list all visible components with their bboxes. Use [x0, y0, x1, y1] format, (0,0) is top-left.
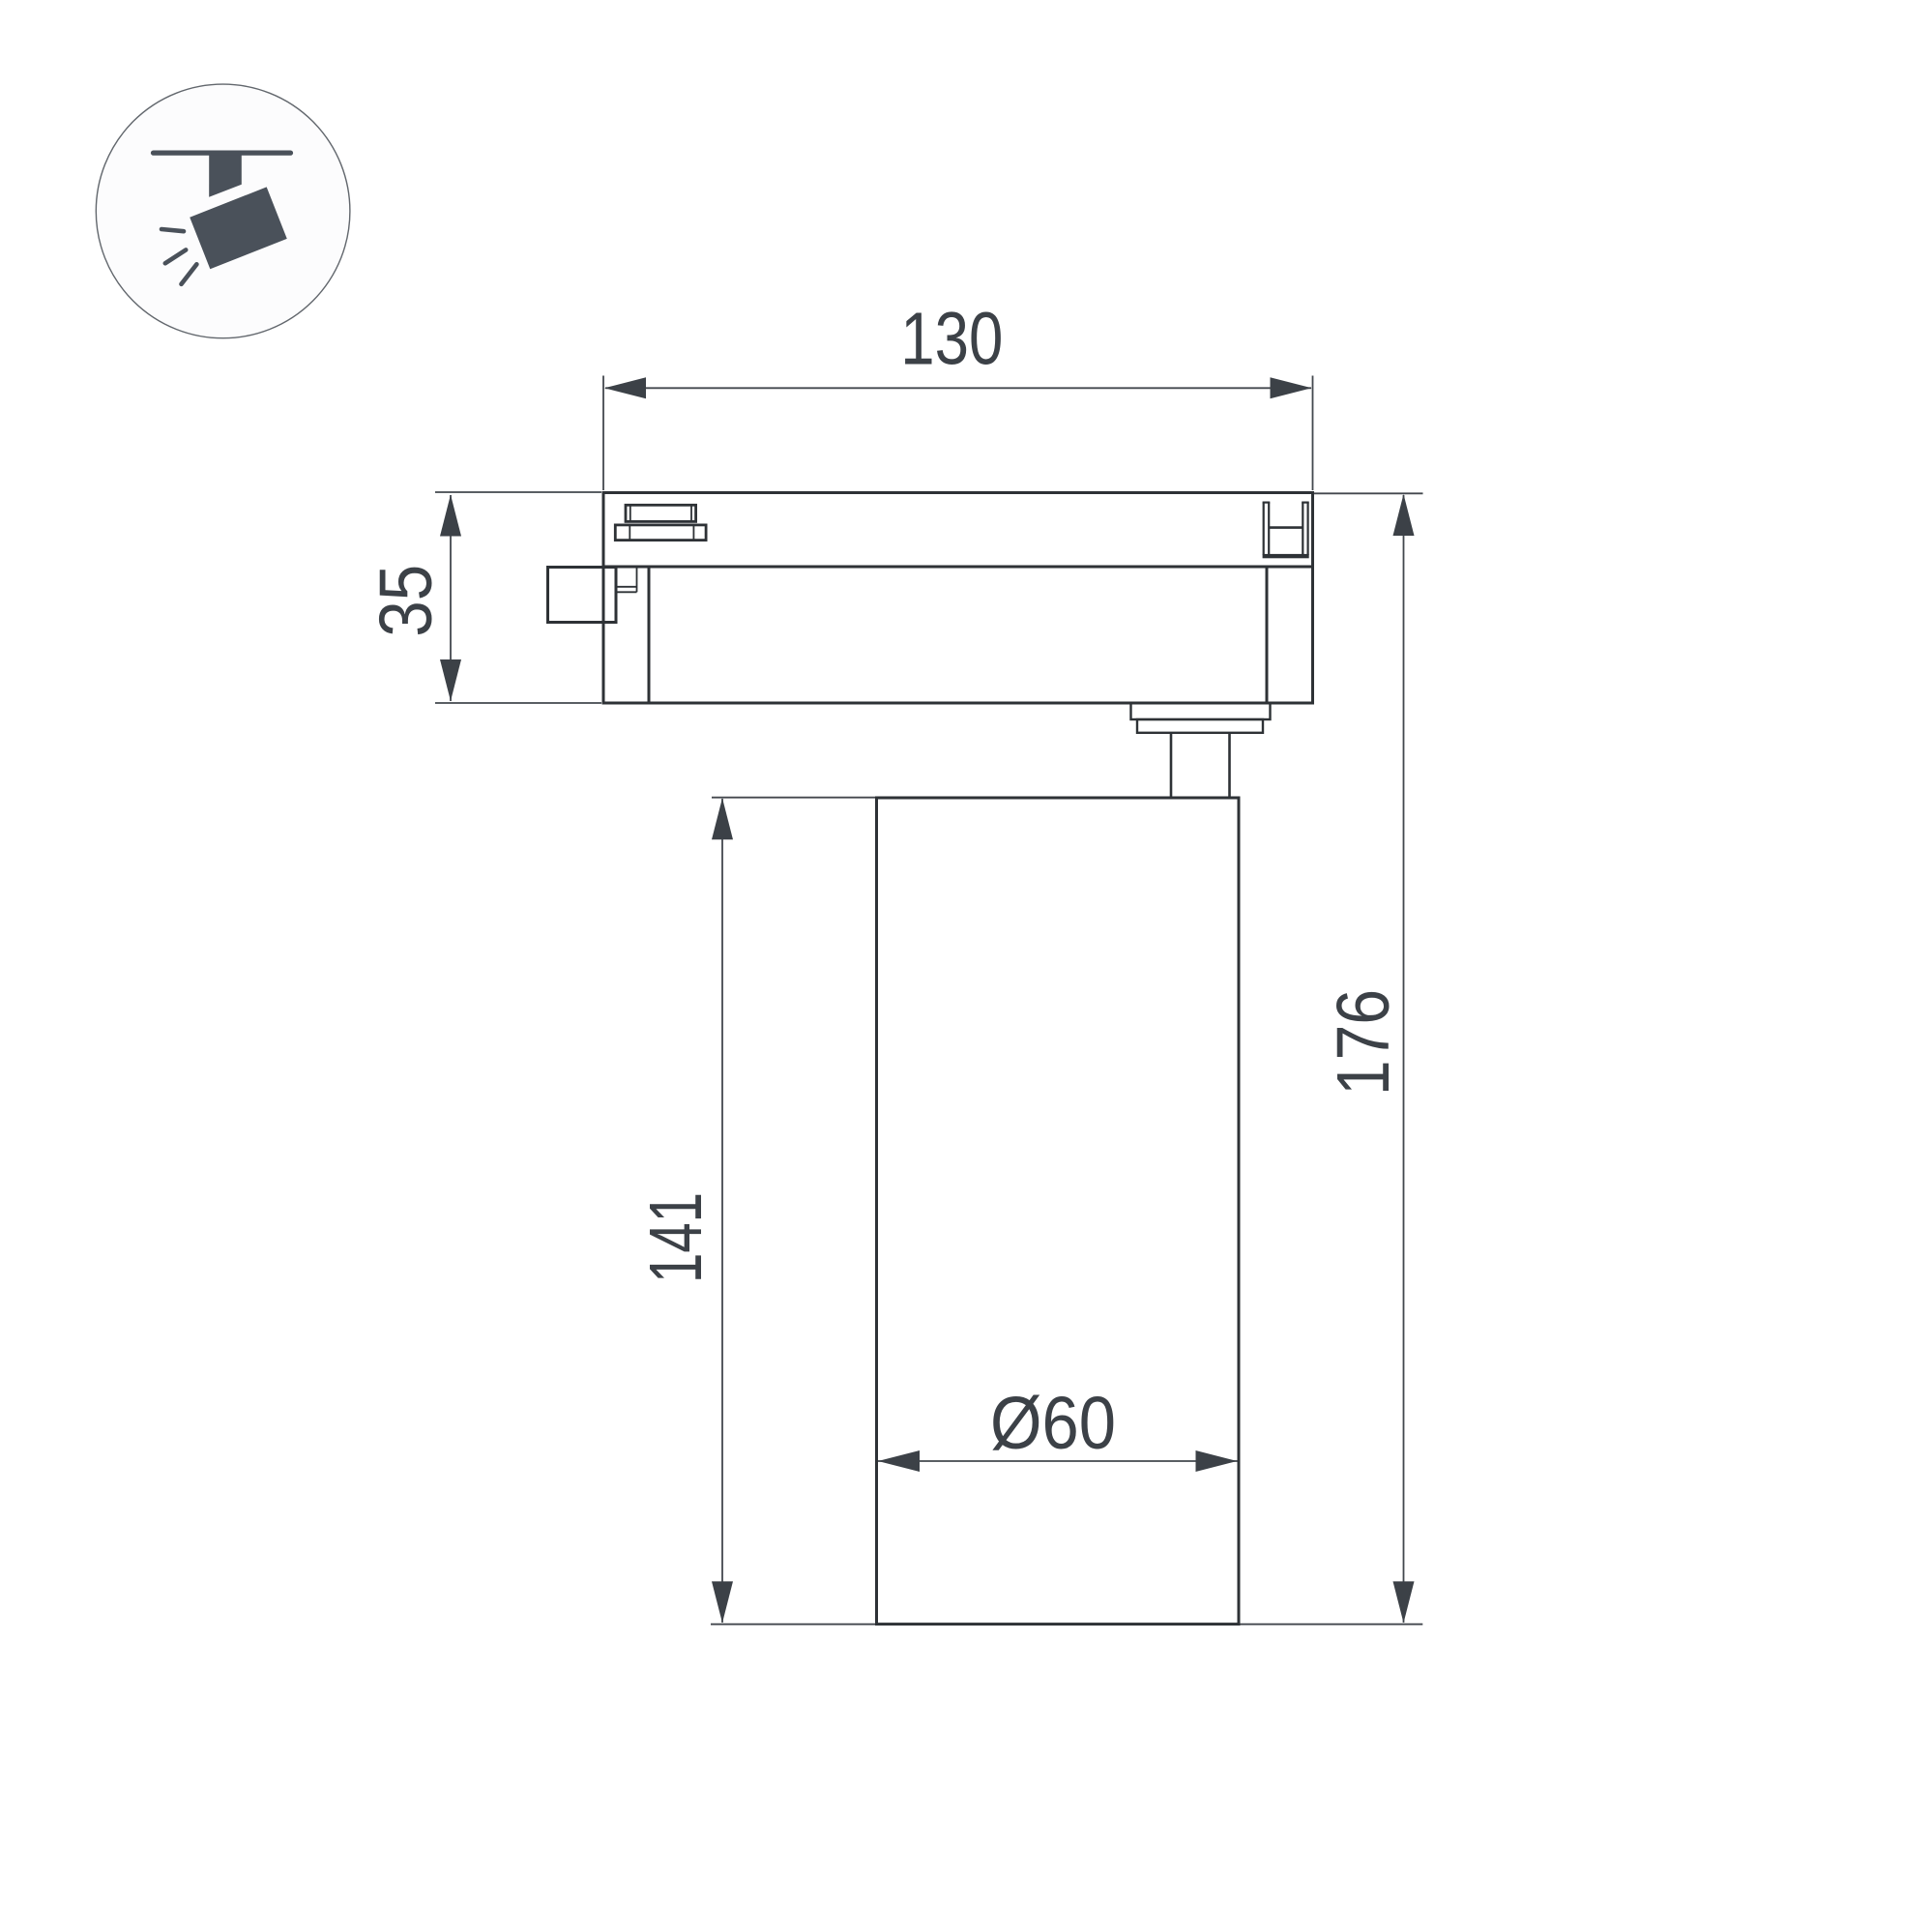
svg-text:35: 35 [365, 565, 448, 637]
svg-text:Ø60: Ø60 [990, 1382, 1116, 1465]
svg-text:176: 176 [1322, 989, 1405, 1096]
svg-text:130: 130 [900, 297, 1003, 380]
svg-text:141: 141 [634, 1192, 717, 1283]
